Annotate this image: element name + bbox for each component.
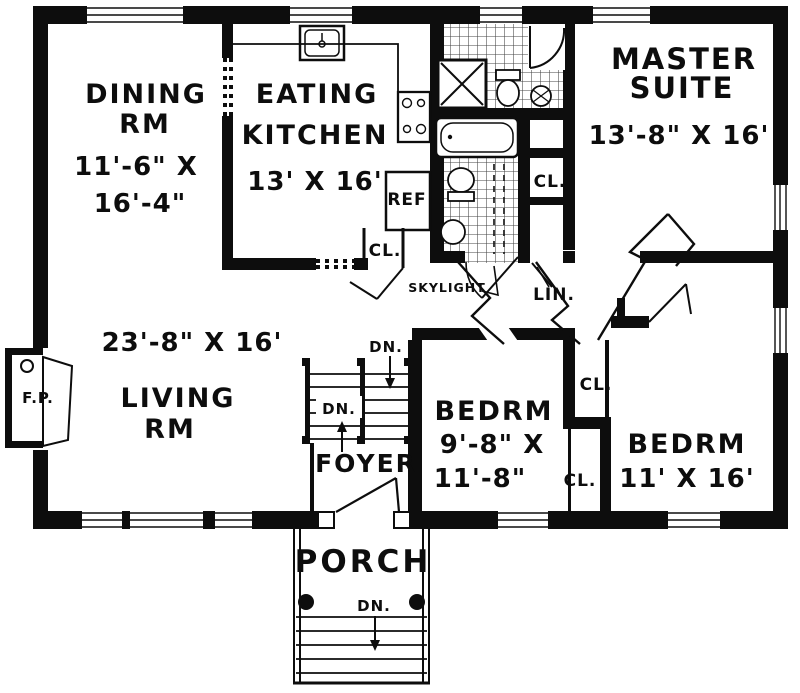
room-bedroom2: BEDRM 11' X 16' [619,429,754,494]
kitchen-dim: 13' X 16' [247,167,382,197]
room-kitchen: EATING KITCHEN 13' X 16' [242,79,389,197]
porch-post-right [409,594,425,610]
skylight-label: SKYLIGHT [408,280,486,295]
floor-plan-svg: DINING RM 11'-6" X 16'-4" EATING KITCHEN… [0,0,800,693]
dining-dim-line1: 11'-6" X [74,152,198,182]
window-living-bottom-3 [215,511,252,529]
window-master-top [593,6,650,24]
bedroom1-name: BEDRM [434,396,553,427]
kitchen-name-line2: KITCHEN [242,120,389,151]
door-upper-bath [528,24,565,70]
room-bedroom1: BEDRM 9'-8" X 11'-8" [434,396,554,494]
kitchen-name-line1: EATING [256,79,378,110]
room-dining: DINING RM 11'-6" X 16'-4" [74,79,207,219]
master-name-line2: SUITE [630,71,735,105]
window-living-bottom-2 [130,511,203,529]
master-dim: 13'-8" X 16' [589,121,770,151]
down-stairs-lower-label: DN. [322,400,356,418]
floor-plan-page: DINING RM 11'-6" X 16'-4" EATING KITCHEN… [0,0,800,693]
closet-kitchen-label: CL. [369,241,402,261]
dining-name-line1: DINING [85,79,207,110]
closet-master-label: CL. [534,172,567,192]
living-dim: 23'-8" X 16' [102,328,283,358]
porch-name: PORCH [295,544,432,580]
bedroom1-dim-line1: 9'-8" X [440,430,545,460]
foyer-name: FOYER [315,449,417,478]
dining-name-line2: RM [119,109,171,140]
dining-dim-line2: 16'-4" [94,189,187,219]
sink-lower-icon [441,220,465,244]
living-name-line2: RM [144,414,196,445]
room-master: MASTER SUITE 13'-8" X 16' [589,42,770,151]
door-front [318,478,410,529]
stairs-arrow-upper [385,356,395,389]
window-bedroom2-bottom [668,511,720,529]
closet-bedroom-lower-label: CL. [564,471,597,491]
window-bedroom1-bottom [498,511,548,529]
staircase [302,356,412,452]
room-living: 23'-8" X 16' LIVING RM [102,328,283,445]
closet-bedroom-upper-label: CL. [580,375,613,395]
down-stairs-upper-label: DN. [369,338,403,356]
sink-upper-icon [531,86,551,106]
living-name-line1: LIVING [121,383,236,414]
refrigerator-label: REF [387,190,426,210]
linen-label: LIN. [533,285,575,305]
bathtub-icon [436,118,518,157]
window-bedroom2-right [773,308,788,353]
bedroom1-dim-line2: 11'-8" [434,464,527,494]
bedroom2-name: BEDRM [627,429,746,460]
fireplace-label: F.P. [22,389,54,407]
window-bath-top [480,6,522,24]
bedroom2-dim: 11' X 16' [619,464,754,494]
window-kitchen-top [290,6,352,24]
window-dining-top [87,6,183,24]
porch-post-left [298,594,314,610]
window-living-bottom-1 [82,511,122,529]
stove-icon [398,92,430,142]
toilet-lower-icon [448,168,474,201]
labels: DINING RM 11'-6" X 16'-4" EATING KITCHEN… [22,42,769,615]
kitchen-sink-icon [300,26,344,60]
window-master-right [773,185,788,230]
washer-icon [438,60,486,108]
door-bedroom2 [649,284,691,322]
down-porch-label: DN. [357,597,391,615]
toilet-upper-icon [496,70,520,106]
